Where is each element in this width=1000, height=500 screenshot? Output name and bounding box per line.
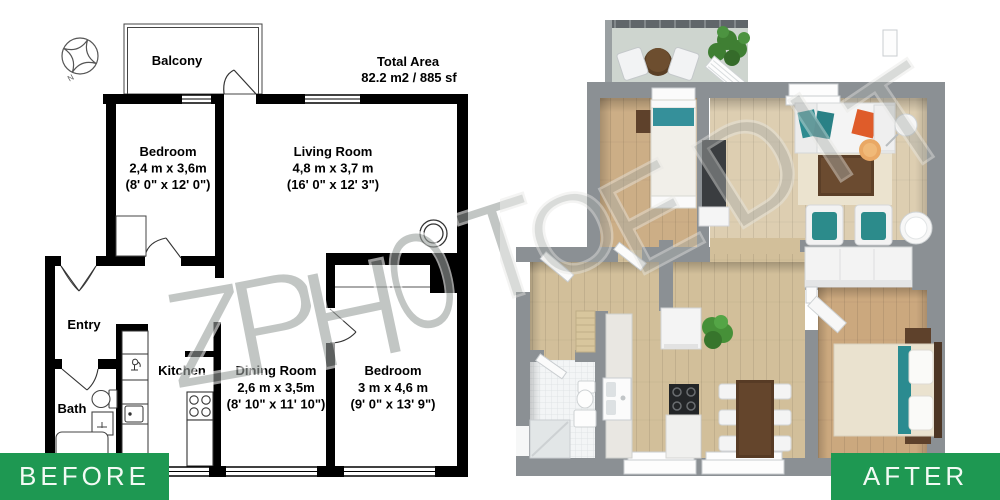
svg-text:Bedroom: Bedroom [139,144,196,159]
svg-text:Entry: Entry [67,317,101,332]
svg-text:4,8 m x 3,7 m: 4,8 m x 3,7 m [293,161,374,176]
svg-text:Total Area: Total Area [377,54,440,69]
svg-text:N: N [66,73,76,84]
svg-text:(8' 0" x 12' 0"): (8' 0" x 12' 0") [126,177,211,192]
svg-text:(16' 0" x 12' 3"): (16' 0" x 12' 3") [287,177,379,192]
svg-text:Balcony: Balcony [152,53,203,68]
svg-text:(9' 0" x 13' 9"): (9' 0" x 13' 9") [351,397,436,412]
svg-text:Living Room: Living Room [294,144,373,159]
svg-text:Bath: Bath [58,401,87,416]
svg-text:2,4 m x 3,6m: 2,4 m x 3,6m [129,161,206,176]
svg-text:82.2 m2 / 885 sf: 82.2 m2 / 885 sf [361,70,457,85]
